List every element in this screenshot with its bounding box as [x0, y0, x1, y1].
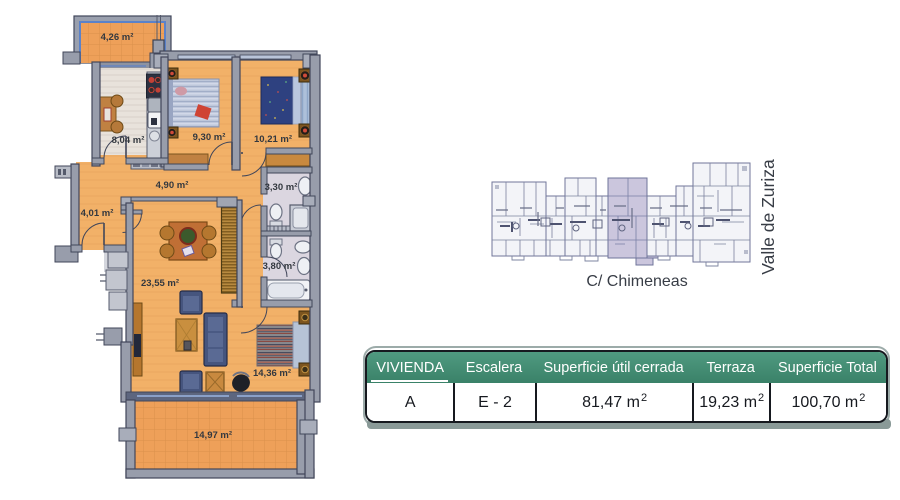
svg-text:3,80 m²: 3,80 m² [263, 261, 296, 272]
svg-text:23,55 m²: 23,55 m² [141, 278, 179, 289]
svg-text:14,36 m²: 14,36 m² [253, 368, 291, 379]
svg-text:C/ Chimeneas: C/ Chimeneas [586, 273, 687, 290]
svg-text:8,04 m²: 8,04 m² [112, 135, 145, 146]
svg-text:4,01 m²: 4,01 m² [81, 208, 114, 219]
svg-text:14,97 m²: 14,97 m² [194, 430, 232, 441]
svg-text:4,90 m²: 4,90 m² [156, 180, 189, 191]
svg-text:Valle de Zuriza: Valle de Zuriza [758, 159, 778, 275]
svg-text:4,26 m²: 4,26 m² [101, 32, 134, 43]
svg-text:9,30 m²: 9,30 m² [193, 132, 226, 143]
svg-text:3,30 m²: 3,30 m² [265, 182, 298, 193]
svg-text:10,21 m²: 10,21 m² [254, 134, 292, 145]
